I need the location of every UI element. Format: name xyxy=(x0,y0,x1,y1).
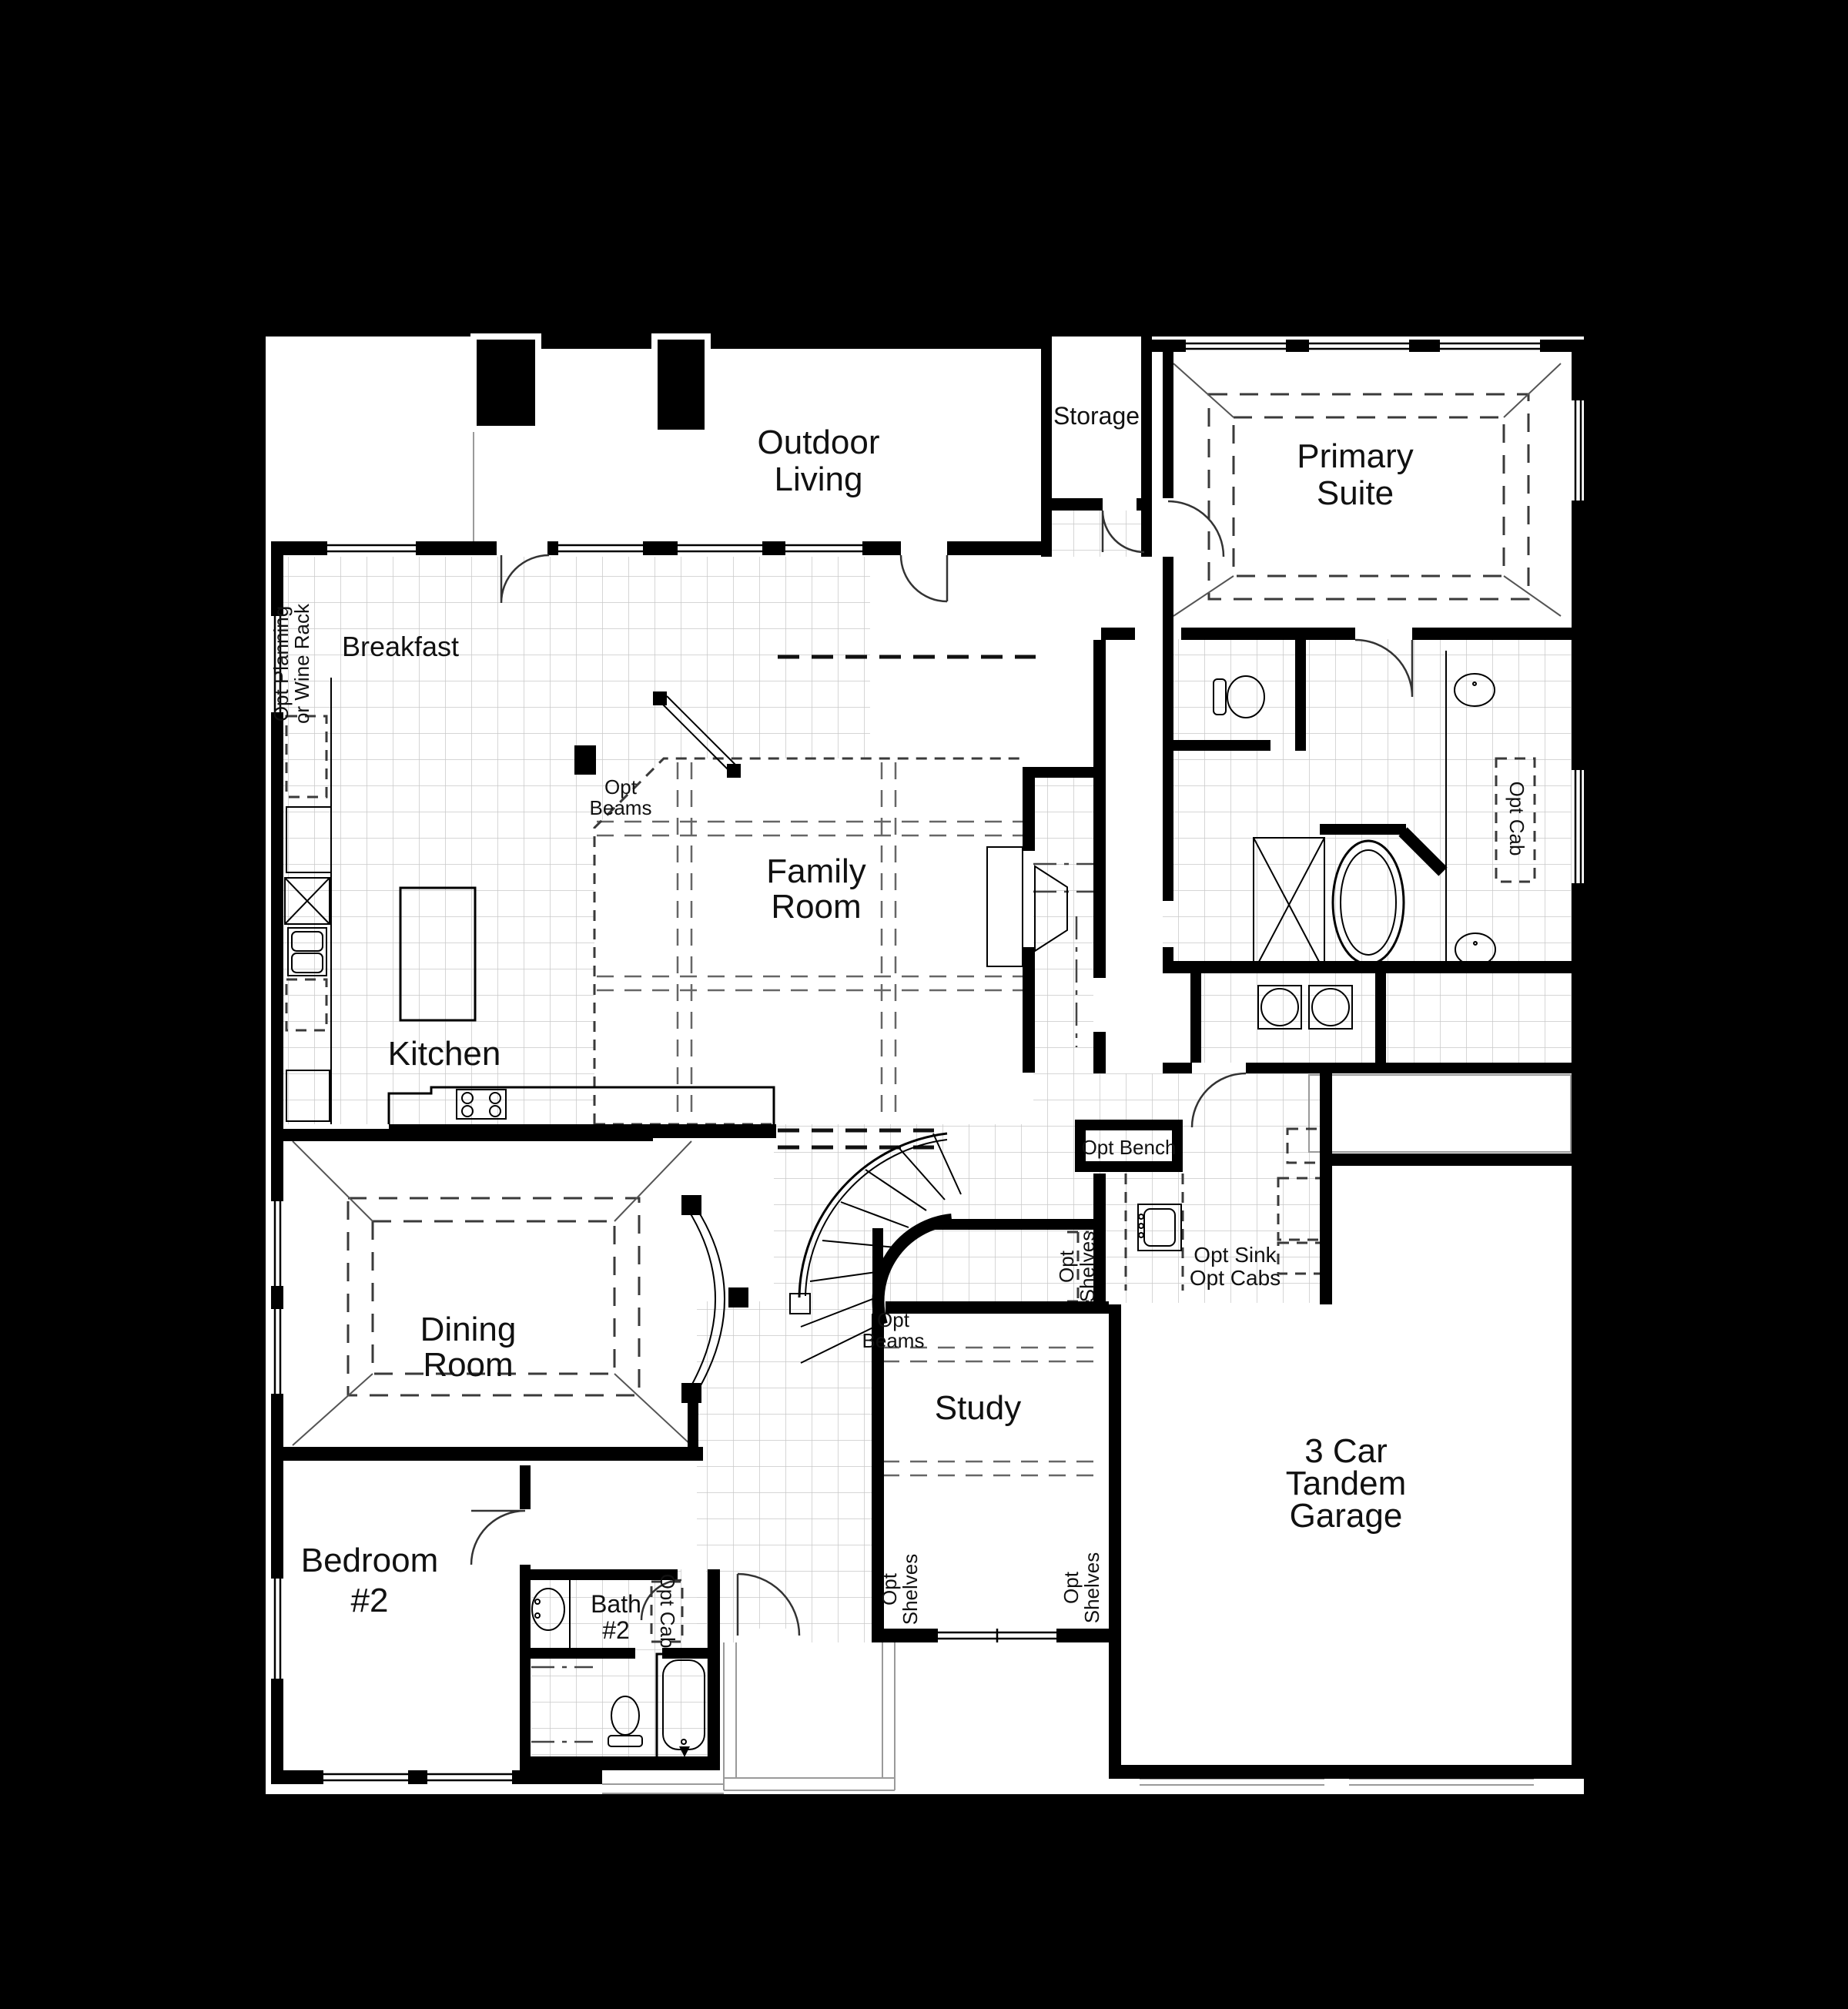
opt-planning-label: Opt Planningor Wine Rack xyxy=(269,603,313,724)
opt-cab-bath2-label: Opt Cab xyxy=(656,1574,679,1649)
opt-sink-cabs-label: Opt SinkOpt Cabs xyxy=(1190,1243,1281,1290)
room-label-storage: Storage xyxy=(1053,402,1140,430)
room-label-study: Study xyxy=(935,1389,1022,1427)
opt-bench-label: Opt Bench xyxy=(1082,1136,1177,1159)
room-label-dining-room: DiningRoom xyxy=(420,1311,517,1384)
room-label-outdoor-living: OutdoorLiving xyxy=(758,424,880,498)
floor-plan-drawing: OutdoorLiving Storage PrimarySuite Break… xyxy=(0,0,1848,2009)
room-label-breakfast: Breakfast xyxy=(342,631,459,662)
floor-plan-page: OutdoorLiving Storage PrimarySuite Break… xyxy=(0,0,1848,2009)
family-room-floor xyxy=(594,758,1024,1124)
opt-cab-primary-label: Opt Cab xyxy=(1505,782,1528,856)
room-label-kitchen: Kitchen xyxy=(388,1035,501,1073)
room-label-family-room: FamilyRoom xyxy=(766,852,866,926)
